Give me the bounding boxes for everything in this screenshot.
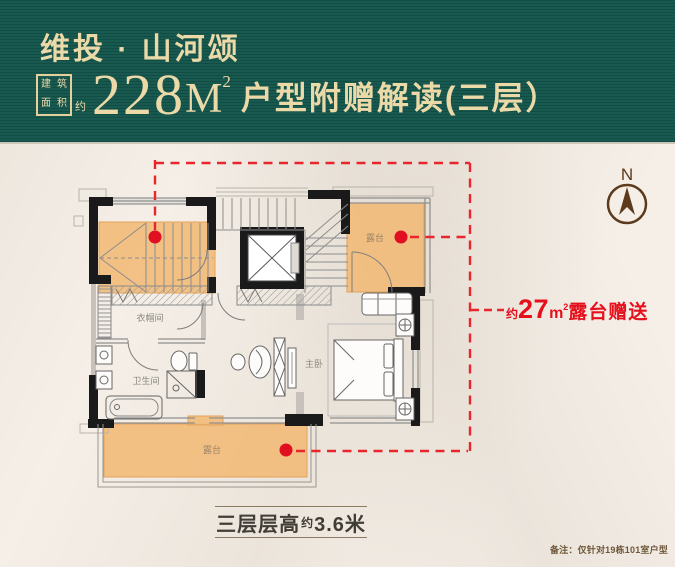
seal-char: 积: [54, 95, 70, 114]
compass: N: [608, 165, 646, 223]
label-terrace-bottom: 露台: [203, 444, 221, 455]
floor-height-value: 3.6米: [314, 508, 366, 537]
area-number: 228: [92, 68, 185, 122]
label-terrace-right: 露台: [366, 232, 384, 243]
area-seal: 建 筑 面 积: [36, 74, 72, 116]
elevator: [248, 235, 299, 281]
seal-char: 建: [38, 76, 54, 95]
gift-text: 露台赠送: [568, 297, 648, 324]
gift-unit: m: [549, 305, 563, 323]
header-banner: 维投 · 山河颂 建 筑 面 积 约 228 M 2 户型附赠解读(三层）: [0, 0, 675, 144]
label-master-bedroom: 主卧: [305, 358, 323, 369]
area-unit: M: [185, 76, 222, 122]
terrace-threshold: [188, 416, 223, 425]
area-headline: 建 筑 面 积 约 228 M 2 户型附赠解读(三层）: [36, 60, 560, 122]
floor-height-approx: 约: [301, 514, 313, 531]
seal-char: 面: [38, 95, 54, 114]
area-exponent: 2: [222, 73, 231, 90]
header-subtitle: 户型附赠解读(三层）: [241, 78, 560, 118]
gift-approx: 约: [506, 305, 518, 322]
label-cloakroom: 衣帽间: [136, 312, 163, 323]
seal-approx: 约: [75, 98, 86, 114]
terrace-gift-annotation: 约 27 m 2 露台赠送: [506, 294, 648, 325]
compass-n-label: N: [621, 165, 633, 184]
disclaimer-note: 备注：仅针对19栋101室户型: [548, 543, 668, 556]
label-bathroom: 卫生间: [132, 375, 159, 386]
floor-height-label: 三层层高 约 3.6米: [215, 506, 367, 538]
compass-north-arrow-icon: [619, 187, 635, 215]
seal-char: 筑: [54, 76, 70, 95]
terrace-right-highlight: [347, 203, 424, 292]
floor-height-main: 三层层高: [216, 508, 300, 537]
gift-value: 27: [518, 294, 549, 325]
gift-unit-exponent: 2: [563, 302, 568, 312]
